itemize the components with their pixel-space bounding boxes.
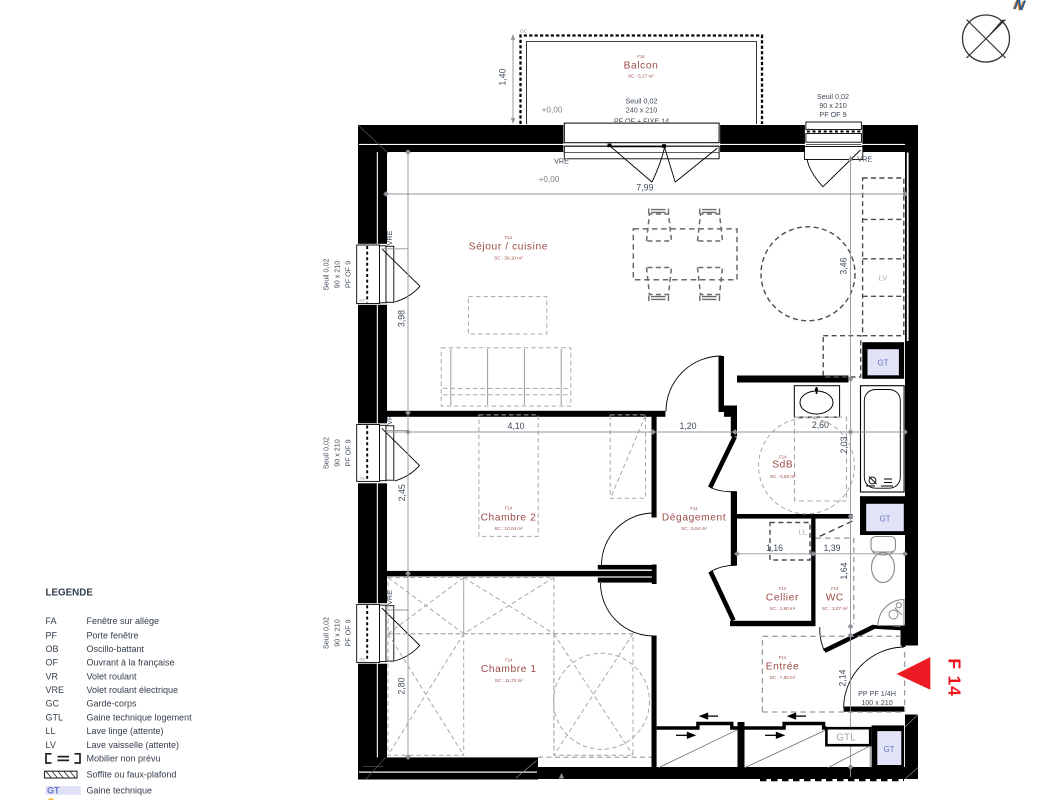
- svg-text:F14: F14: [505, 506, 513, 511]
- svg-text:Seuil 0,02: Seuil 0,02: [322, 259, 331, 291]
- svg-text:VR: VR: [46, 672, 59, 682]
- svg-text:SC : 7,60 m²: SC : 7,60 m²: [770, 675, 796, 680]
- svg-text:2,14: 2,14: [838, 669, 848, 686]
- svg-text:F14: F14: [831, 586, 839, 591]
- svg-text:90 x 210: 90 x 210: [333, 261, 342, 289]
- svg-text:Seuil 0,02: Seuil 0,02: [626, 97, 658, 106]
- svg-text:PF OF 9: PF OF 9: [819, 110, 846, 119]
- svg-text:SC : 10,04 m²: SC : 10,04 m²: [494, 526, 523, 531]
- svg-text:GC: GC: [46, 699, 60, 709]
- svg-text:Volet roulant: Volet roulant: [87, 672, 138, 682]
- svg-text:GC: GC: [360, 657, 366, 662]
- svg-text:Lave linge (attente): Lave linge (attente): [87, 726, 164, 736]
- svg-text:FA: FA: [46, 616, 57, 626]
- svg-text:GTL: GTL: [836, 733, 856, 744]
- svg-text:Dégagement: Dégagement: [662, 513, 726, 524]
- svg-text:Oscillo-battant: Oscillo-battant: [87, 644, 145, 654]
- svg-text:1,39: 1,39: [823, 543, 840, 553]
- svg-text:F14: F14: [779, 655, 787, 660]
- svg-text:Mobilier non prévu: Mobilier non prévu: [87, 754, 161, 764]
- svg-text:GC: GC: [807, 127, 813, 132]
- svg-text:OB: OB: [46, 644, 59, 654]
- svg-text:Ouvrant à la française: Ouvrant à la française: [87, 658, 175, 668]
- svg-text:Seuil 0,02: Seuil 0,02: [817, 92, 849, 101]
- svg-text:Seuil 0,02: Seuil 0,02: [322, 617, 331, 649]
- svg-text:Gaine technique: Gaine technique: [87, 785, 153, 795]
- svg-text:PP PF 1/4H: PP PF 1/4H: [858, 689, 896, 698]
- svg-text:1,16: 1,16: [766, 543, 783, 553]
- svg-text:PF OF 9: PF OF 9: [344, 439, 353, 466]
- svg-text:Seuil 0,02: Seuil 0,02: [322, 437, 331, 469]
- svg-text:LL: LL: [46, 726, 56, 736]
- svg-text:Chambre 1: Chambre 1: [481, 664, 537, 675]
- svg-text:Séjour / cuisine: Séjour / cuisine: [469, 242, 548, 253]
- svg-text:1,40: 1,40: [498, 68, 508, 85]
- svg-text:SC : 30,10 m²: SC : 30,10 m²: [494, 256, 523, 261]
- svg-text:90 x 210: 90 x 210: [333, 619, 342, 647]
- svg-text:Lave vaisselle (attente): Lave vaisselle (attente): [87, 740, 180, 750]
- svg-text:+0,00: +0,00: [542, 106, 563, 115]
- svg-text:VRE: VRE: [46, 685, 65, 695]
- svg-text:OF: OF: [46, 658, 59, 668]
- svg-text:F14: F14: [637, 54, 645, 59]
- svg-text:Porte fenêtre: Porte fenêtre: [87, 630, 139, 640]
- svg-text:2,60: 2,60: [812, 420, 829, 430]
- svg-text:100 x 210: 100 x 210: [861, 698, 893, 707]
- svg-text:GC: GC: [520, 29, 528, 35]
- svg-text:VRE: VRE: [554, 157, 569, 166]
- svg-text:1,20: 1,20: [679, 421, 696, 431]
- svg-text:4,10: 4,10: [507, 421, 524, 431]
- svg-text:GT: GT: [883, 745, 894, 754]
- svg-text:Fenêtre sur allège: Fenêtre sur allège: [87, 616, 160, 626]
- svg-text:Volet roulant électrique: Volet roulant électrique: [87, 685, 179, 695]
- svg-text:GT: GT: [877, 359, 888, 368]
- svg-text:SC : 5,06 m²: SC : 5,06 m²: [770, 474, 796, 479]
- svg-text:7,99: 7,99: [636, 182, 653, 192]
- svg-text:VRE: VRE: [385, 230, 394, 245]
- svg-text:GC: GC: [360, 476, 366, 481]
- svg-text:Garde-corps: Garde-corps: [87, 699, 138, 709]
- svg-text:PF OF 9: PF OF 9: [344, 619, 353, 646]
- svg-text:3,98: 3,98: [397, 310, 407, 327]
- svg-text:2,45: 2,45: [397, 484, 407, 501]
- svg-text:Chambre 2: Chambre 2: [481, 513, 537, 524]
- svg-text:SC : 2,07 m²: SC : 2,07 m²: [822, 606, 848, 611]
- svg-text:2,80: 2,80: [397, 677, 407, 694]
- svg-text:Gaine technique logement: Gaine technique logement: [87, 713, 193, 723]
- svg-text:SdB: SdB: [772, 460, 793, 471]
- svg-text:SC : 1,90 m²: SC : 1,90 m²: [770, 606, 796, 611]
- svg-text:GT: GT: [47, 786, 60, 796]
- svg-text:Entrée: Entrée: [766, 662, 800, 673]
- svg-text:Balcon: Balcon: [624, 61, 659, 72]
- svg-text:240 x 210: 240 x 210: [626, 106, 658, 115]
- svg-text:F14: F14: [505, 235, 513, 240]
- svg-text:2,03: 2,03: [839, 436, 849, 453]
- svg-text:LL: LL: [799, 528, 807, 537]
- svg-text:PF OF 9: PF OF 9: [344, 261, 353, 288]
- svg-text:Soffite ou faux-plafond: Soffite ou faux-plafond: [87, 770, 177, 780]
- svg-text:F14: F14: [779, 586, 787, 591]
- svg-text:GC: GC: [360, 298, 366, 303]
- svg-text:3,46: 3,46: [839, 257, 849, 274]
- svg-text:1,64: 1,64: [839, 562, 849, 579]
- svg-text:WC: WC: [826, 593, 844, 604]
- svg-text:SC : 11,72 m²: SC : 11,72 m²: [495, 678, 523, 683]
- svg-text:F 14: F 14: [945, 658, 965, 696]
- svg-text:Cellier: Cellier: [766, 593, 799, 604]
- svg-text:90 x 210: 90 x 210: [819, 101, 847, 110]
- svg-text:LV: LV: [879, 274, 889, 283]
- svg-text:SC : 5,54 m²: SC : 5,54 m²: [681, 526, 707, 531]
- svg-text:F14: F14: [505, 658, 513, 663]
- svg-text:LV: LV: [46, 740, 56, 750]
- svg-text:VRE: VRE: [857, 155, 872, 164]
- svg-text:LEGENDE: LEGENDE: [46, 588, 94, 599]
- svg-text:F14: F14: [690, 506, 698, 511]
- svg-text:VRE: VRE: [385, 590, 394, 605]
- svg-text:PF: PF: [46, 630, 58, 640]
- svg-text:GT: GT: [879, 515, 890, 524]
- svg-text:90 x 210: 90 x 210: [333, 439, 342, 467]
- svg-text:+0,00: +0,00: [539, 175, 560, 184]
- svg-text:GTL: GTL: [46, 713, 64, 723]
- svg-text:SC : 5,17 m²: SC : 5,17 m²: [628, 74, 654, 79]
